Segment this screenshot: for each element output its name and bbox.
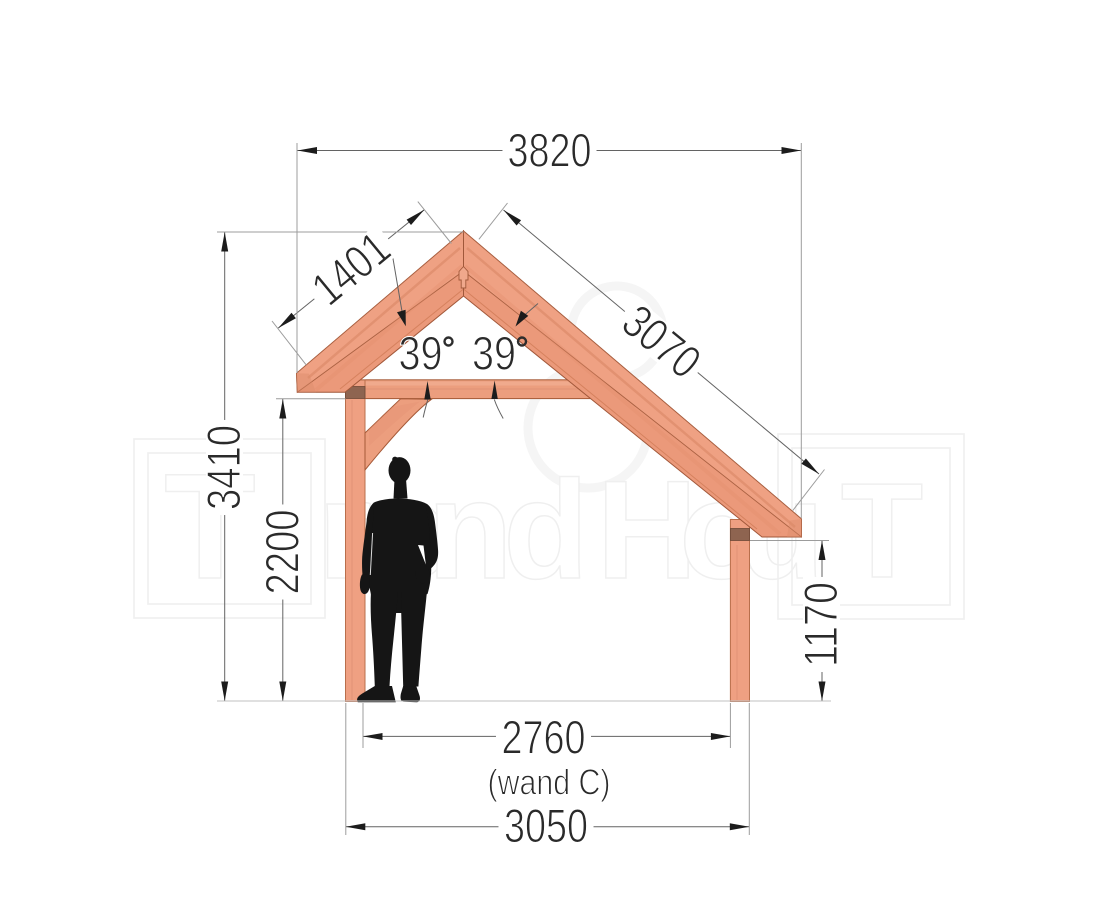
svg-text:n: n [427, 451, 513, 608]
svg-text:39: 39 [472, 327, 516, 380]
svg-text:1170: 1170 [794, 582, 847, 667]
svg-text:39: 39 [399, 327, 443, 380]
svg-text:3410: 3410 [197, 425, 250, 510]
svg-text:3050: 3050 [504, 799, 588, 852]
svg-text:2200: 2200 [256, 510, 309, 595]
svg-text:(wand C): (wand C) [488, 762, 611, 803]
svg-text:2760: 2760 [502, 711, 586, 764]
svg-text:T: T [841, 455, 923, 606]
svg-text:d: d [503, 451, 589, 608]
svg-text:3820: 3820 [508, 124, 592, 177]
